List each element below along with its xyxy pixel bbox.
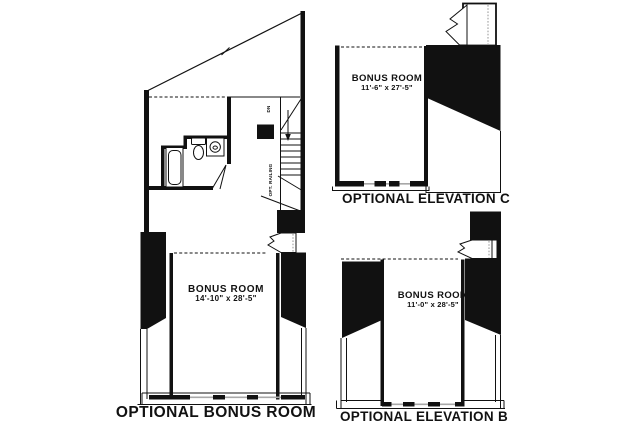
- optional-elevation-c: BONUS ROOM 11'-6" x 27'-5" OPTIONAL ELEV…: [333, 4, 511, 207]
- left-band: [342, 262, 382, 339]
- bath-right-wall: [227, 97, 231, 164]
- sink: [207, 138, 225, 156]
- right-opening-break: [268, 233, 296, 253]
- floor-plan-drawing: DN OPT. RAILING BONUS ROOM 14'-10" x 28'…: [0, 0, 640, 426]
- bathtub: [166, 148, 183, 188]
- bottom-wall: [382, 402, 465, 407]
- right-band-lower: [281, 253, 306, 329]
- right-band-upper: [277, 210, 305, 233]
- opening-break: [458, 240, 492, 259]
- left-band: [141, 232, 167, 329]
- bath-left-wall: [161, 146, 165, 191]
- right-band: [465, 259, 501, 336]
- left-wall: [335, 46, 340, 187]
- bonus-room-bottom-wall: [149, 395, 305, 400]
- bath-door-swing: [212, 165, 226, 189]
- left-wall: [144, 90, 149, 232]
- staircase: [257, 97, 303, 212]
- plan-title: OPTIONAL ELEVATION C: [342, 191, 510, 206]
- plan-title: OPTIONAL ELEVATION B: [340, 409, 508, 424]
- bottom-wall: [335, 181, 428, 187]
- opening-edge-lines: [492, 240, 497, 259]
- lower-roof-outline: [426, 131, 501, 193]
- railing-label: OPT. RAILING: [268, 163, 273, 196]
- room-left-wall: [381, 260, 385, 407]
- stair-treads: [281, 133, 301, 175]
- room-dimensions: 11'-0" x 28'-5": [407, 300, 459, 309]
- dormer-box: [463, 4, 496, 46]
- plan-title: OPTIONAL BONUS ROOM: [116, 404, 316, 421]
- room-dimensions: 11'-6" x 27'-5": [361, 83, 413, 92]
- down-arrow-head: [285, 134, 291, 141]
- room-dimensions: 14'-10" x 28'-5": [195, 294, 257, 303]
- bonus-room-right-wall: [276, 253, 280, 400]
- side-lines: [341, 335, 501, 409]
- room-right-wall: [461, 260, 465, 407]
- right-wall: [301, 11, 306, 211]
- toilet: [192, 138, 206, 160]
- stair-top-diagonal: [281, 99, 301, 130]
- break-symbol: [446, 5, 467, 45]
- optional-bonus-room-plan: DN OPT. RAILING BONUS ROOM 14'-10" x 28'…: [116, 11, 316, 421]
- optional-elevation-b: BONUS ROOM 11'-0" x 28'-5" OPTIONAL ELEV…: [337, 212, 509, 425]
- down-label: DN: [266, 105, 271, 113]
- roof-tick: [222, 48, 230, 56]
- top-band-edge: [497, 240, 501, 259]
- top-band: [470, 212, 501, 241]
- roof-mass: [426, 45, 501, 131]
- railing-wall-stub: [257, 125, 274, 140]
- face-line: [333, 187, 430, 191]
- blueprint-page: DN OPT. RAILING BONUS ROOM 14'-10" x 28'…: [0, 0, 640, 426]
- bonus-room-left-wall: [170, 253, 174, 400]
